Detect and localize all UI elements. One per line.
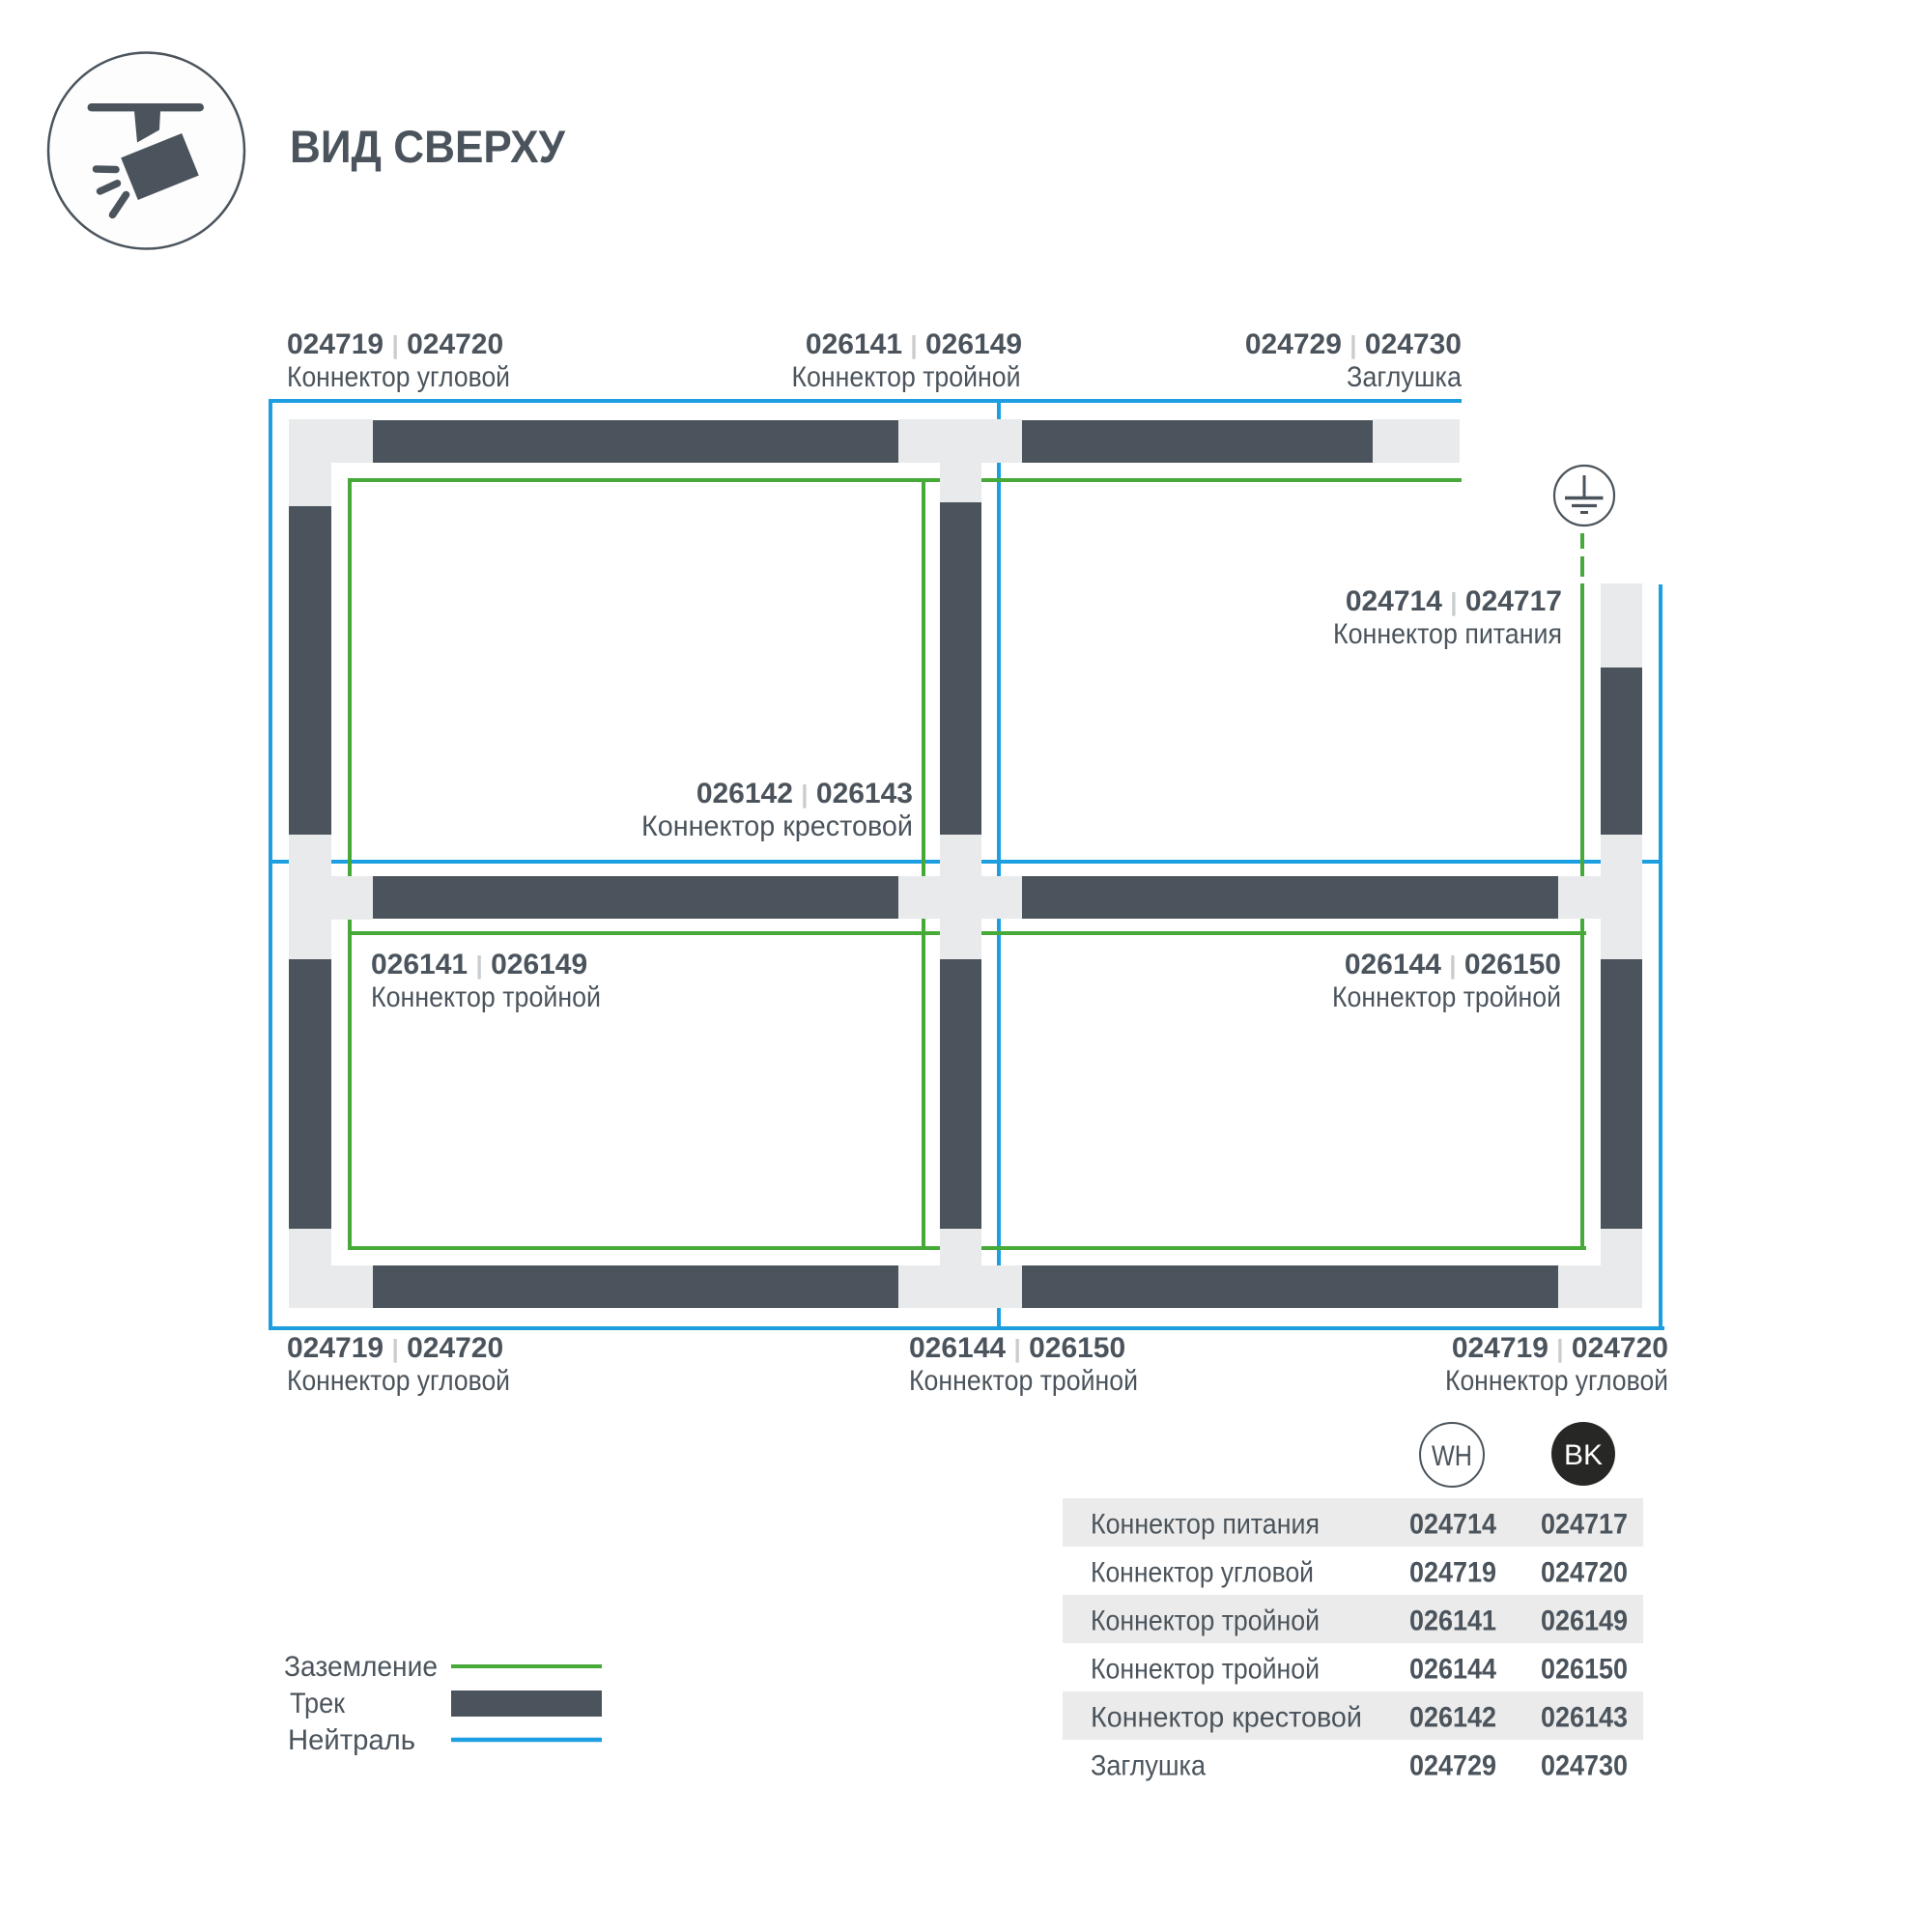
svg-text:Коннектор крестовой: Коннектор крестовой — [1091, 1702, 1362, 1734]
svg-text:Коннектор тройной: Коннектор тройной — [1091, 1605, 1320, 1637]
svg-text:026141 | 026149: 026141 | 026149 — [806, 328, 1022, 360]
svg-text:026142: 026142 — [1409, 1702, 1496, 1734]
svg-text:026149: 026149 — [1541, 1605, 1628, 1637]
svg-text:Трек: Трек — [290, 1688, 346, 1719]
svg-text:024730: 024730 — [1541, 1750, 1628, 1782]
svg-text:024719 | 024720: 024719 | 024720 — [287, 328, 503, 360]
svg-text:Заглушка: Заглушка — [1091, 1750, 1206, 1782]
svg-text:026141: 026141 — [1409, 1605, 1496, 1637]
svg-text:026142 | 026143: 026142 | 026143 — [696, 778, 913, 810]
svg-text:Коннектор угловой: Коннектор угловой — [287, 1365, 510, 1397]
svg-text:024720: 024720 — [1541, 1557, 1628, 1589]
svg-text:026144: 026144 — [1409, 1654, 1496, 1686]
svg-text:026141 | 026149: 026141 | 026149 — [371, 949, 587, 980]
svg-text:024714: 024714 — [1409, 1509, 1496, 1541]
svg-text:Коннектор угловой: Коннектор угловой — [287, 361, 510, 393]
svg-text:026144 | 026150: 026144 | 026150 — [909, 1332, 1125, 1364]
svg-text:Коннектор питания: Коннектор питания — [1333, 618, 1562, 650]
svg-text:Коннектор угловой: Коннектор угловой — [1445, 1365, 1668, 1397]
svg-text:Нейтраль: Нейтраль — [288, 1724, 415, 1756]
svg-text:026144 | 026150: 026144 | 026150 — [1345, 949, 1561, 980]
svg-text:026143: 026143 — [1541, 1702, 1628, 1734]
svg-text:026150: 026150 — [1541, 1654, 1628, 1686]
svg-text:Коннектор угловой: Коннектор угловой — [1091, 1557, 1314, 1589]
svg-text:BK: BK — [1564, 1439, 1603, 1471]
svg-text:Коннектор крестовой: Коннектор крестовой — [641, 810, 913, 842]
svg-text:Коннектор тройной: Коннектор тройной — [909, 1365, 1138, 1397]
svg-text:WH: WH — [1432, 1440, 1472, 1472]
svg-text:ВИД СВЕРХУ: ВИД СВЕРХУ — [290, 121, 566, 172]
svg-text:024714 | 024717: 024714 | 024717 — [1346, 585, 1562, 617]
svg-text:024729 | 024730: 024729 | 024730 — [1245, 328, 1462, 360]
svg-text:024719 | 024720: 024719 | 024720 — [1452, 1332, 1668, 1364]
svg-text:Коннектор питания: Коннектор питания — [1091, 1509, 1320, 1541]
svg-text:024719 | 024720: 024719 | 024720 — [287, 1332, 503, 1364]
svg-text:Заглушка: Заглушка — [1347, 361, 1462, 393]
svg-text:Коннектор тройной: Коннектор тройной — [792, 361, 1021, 393]
svg-text:Заземление: Заземление — [284, 1651, 438, 1683]
svg-text:Коннектор тройной: Коннектор тройной — [1332, 981, 1561, 1013]
svg-text:024729: 024729 — [1409, 1750, 1496, 1782]
svg-text:024719: 024719 — [1409, 1557, 1496, 1589]
svg-text:Коннектор тройной: Коннектор тройной — [371, 981, 601, 1013]
svg-text:024717: 024717 — [1541, 1509, 1628, 1541]
svg-text:Коннектор тройной: Коннектор тройной — [1091, 1654, 1320, 1686]
